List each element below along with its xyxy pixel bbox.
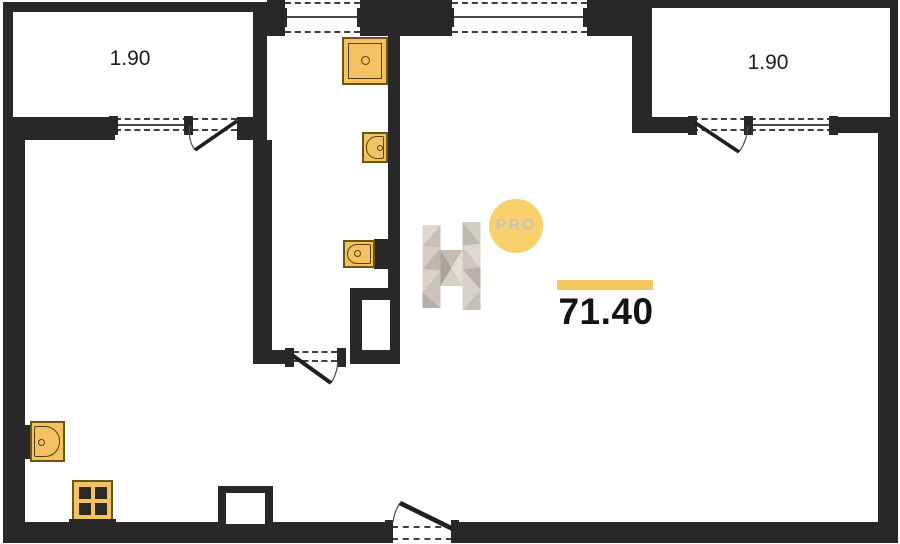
washbasin-left-drain	[38, 439, 45, 446]
total-area-value: 71.40	[551, 291, 661, 335]
shower-drain	[361, 56, 370, 65]
stove-burner	[95, 503, 107, 515]
balcony-right-label: 1.90	[734, 51, 802, 75]
balcony-left-label: 1.90	[96, 47, 164, 71]
door-leaf	[195, 121, 237, 150]
toilet-cistern	[374, 239, 390, 269]
door-arc	[331, 361, 338, 383]
door-leaf	[292, 355, 331, 383]
door-leaf	[400, 503, 453, 529]
stove-burner	[79, 487, 91, 499]
shower-tray	[342, 37, 388, 85]
stove-burner	[79, 503, 91, 515]
door-arc	[739, 126, 748, 152]
washbasin-bathroom	[362, 132, 388, 163]
door-leaf	[694, 122, 739, 152]
toilet	[343, 240, 375, 268]
area-accent-bar	[557, 280, 653, 290]
watermark-h-logo	[422, 222, 481, 310]
washbasin-left	[30, 421, 65, 462]
door-arc	[393, 503, 400, 522]
washbasin-drain	[377, 145, 383, 151]
watermark-pro-badge: PRO	[489, 199, 543, 253]
stove-base	[69, 519, 116, 527]
stove	[72, 480, 113, 521]
stove-burner	[95, 487, 107, 499]
door-arc	[189, 126, 195, 150]
toilet-drain	[354, 250, 361, 257]
floor-plan: 1.90 1.90 71.40 PRO	[0, 0, 900, 544]
